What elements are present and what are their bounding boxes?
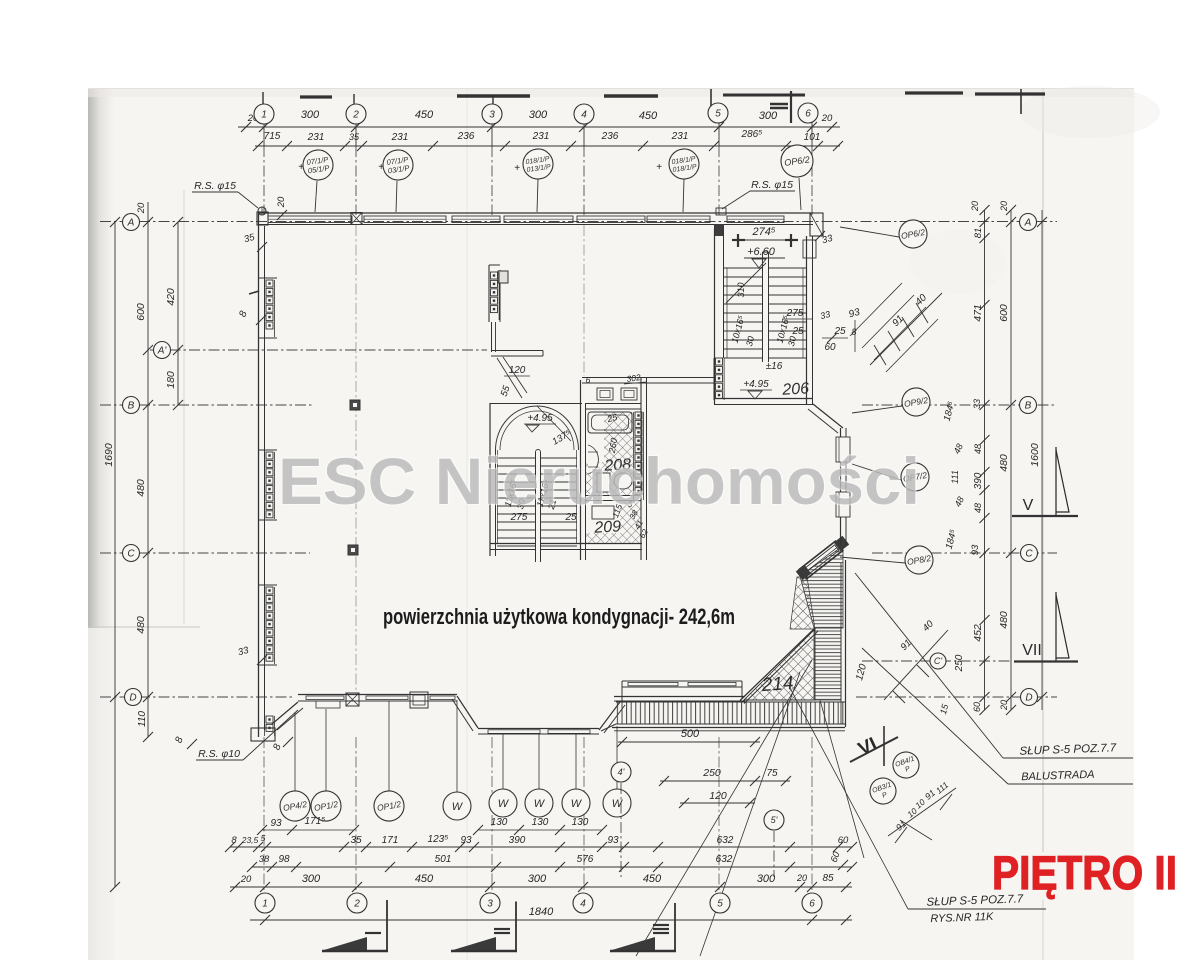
- svg-text:600: 600: [998, 304, 1010, 322]
- svg-text:B: B: [128, 401, 135, 412]
- svg-text:81: 81: [973, 228, 984, 239]
- svg-text:3: 3: [489, 110, 495, 121]
- svg-text:W: W: [534, 798, 546, 810]
- svg-text:20: 20: [970, 201, 980, 212]
- svg-text:130: 130: [572, 817, 589, 828]
- svg-text:5: 5: [715, 109, 721, 120]
- svg-text:302: 302: [626, 372, 642, 384]
- svg-text:20: 20: [276, 196, 287, 208]
- svg-text:171: 171: [382, 835, 399, 846]
- svg-text:480: 480: [998, 454, 1010, 472]
- svg-text:+4.95: +4.95: [743, 379, 769, 390]
- svg-text:110: 110: [137, 711, 148, 727]
- svg-text:6: 6: [809, 899, 815, 910]
- svg-text:480: 480: [135, 479, 147, 497]
- svg-text:A: A: [1024, 218, 1032, 229]
- svg-text:93: 93: [270, 818, 282, 829]
- svg-text:D: D: [1025, 693, 1032, 704]
- svg-text:60: 60: [972, 702, 982, 712]
- svg-text:420: 420: [165, 288, 177, 306]
- svg-text:+: +: [514, 163, 520, 174]
- svg-text:33: 33: [972, 399, 982, 409]
- svg-text:120: 120: [509, 365, 526, 376]
- svg-text:A: A: [127, 218, 135, 229]
- svg-text:214: 214: [760, 673, 794, 696]
- svg-text:20: 20: [240, 874, 252, 885]
- svg-text:4': 4': [618, 767, 625, 777]
- svg-text:120: 120: [709, 790, 727, 802]
- svg-text:75: 75: [766, 768, 778, 779]
- svg-text:130: 130: [491, 817, 508, 828]
- svg-text:48: 48: [973, 503, 983, 513]
- svg-text:300: 300: [528, 873, 547, 885]
- svg-text:390: 390: [509, 835, 526, 846]
- svg-text:209: 209: [593, 518, 622, 536]
- svg-text:390: 390: [973, 472, 984, 489]
- svg-text:R.S. φ10: R.S. φ10: [198, 748, 240, 760]
- svg-text:93: 93: [607, 835, 619, 846]
- svg-text:4: 4: [581, 110, 587, 121]
- svg-text:274⁵: 274⁵: [752, 226, 776, 238]
- svg-text:300: 300: [757, 873, 776, 885]
- svg-text:A': A': [157, 346, 168, 357]
- svg-text:275: 275: [786, 308, 804, 319]
- svg-text:2: 2: [353, 899, 360, 910]
- svg-text:W: W: [452, 801, 464, 813]
- svg-text:2: 2: [352, 110, 359, 121]
- svg-text:5: 5: [717, 899, 723, 910]
- svg-text:±16: ±16: [766, 361, 783, 372]
- svg-text:300: 300: [529, 109, 548, 121]
- svg-text:35: 35: [349, 132, 360, 142]
- svg-text:98: 98: [278, 854, 290, 865]
- svg-text:5': 5': [771, 815, 778, 825]
- svg-text:20: 20: [999, 700, 1009, 711]
- svg-text:5: 5: [261, 833, 266, 843]
- svg-text:R.S. φ15: R.S. φ15: [751, 179, 793, 191]
- svg-text:38: 38: [259, 854, 270, 865]
- svg-text:20: 20: [796, 873, 807, 883]
- svg-text:480: 480: [135, 616, 147, 634]
- svg-text:25: 25: [791, 326, 804, 337]
- svg-text:632: 632: [717, 835, 734, 846]
- svg-text:471: 471: [972, 304, 984, 322]
- svg-text:101: 101: [804, 132, 821, 143]
- svg-text:632: 632: [716, 854, 733, 865]
- svg-text:250: 250: [702, 767, 721, 779]
- svg-text:310: 310: [736, 282, 746, 297]
- svg-text:1: 1: [262, 899, 268, 910]
- svg-text:20: 20: [999, 201, 1009, 212]
- svg-text:286⁵: 286⁵: [741, 129, 763, 140]
- svg-text:23,5: 23,5: [241, 835, 259, 845]
- svg-text:480: 480: [998, 611, 1010, 629]
- svg-text:452: 452: [972, 624, 984, 642]
- svg-text:450: 450: [415, 109, 434, 121]
- svg-text:111: 111: [950, 470, 960, 484]
- svg-text:20: 20: [136, 202, 147, 214]
- svg-text:231: 231: [532, 131, 550, 142]
- svg-text:+4.95: +4.95: [527, 413, 553, 424]
- svg-text:C: C: [1025, 549, 1033, 560]
- svg-text:PIĘTRO II: PIĘTRO II: [992, 846, 1177, 899]
- svg-text:500: 500: [681, 728, 700, 740]
- svg-text:171⁵: 171⁵: [305, 816, 326, 827]
- svg-text:BALUSTRADA: BALUSTRADA: [1021, 769, 1095, 784]
- svg-text:C': C': [934, 656, 942, 666]
- svg-text:450: 450: [639, 110, 658, 122]
- svg-text:576: 576: [577, 854, 594, 865]
- svg-text:B: B: [1025, 401, 1032, 412]
- svg-text:60: 60: [838, 835, 849, 846]
- svg-text:W: W: [498, 798, 510, 810]
- svg-text:3: 3: [487, 899, 493, 910]
- svg-text:300: 300: [759, 110, 778, 122]
- svg-text:450: 450: [415, 873, 434, 885]
- svg-text:35: 35: [350, 835, 362, 846]
- svg-text:+: +: [656, 162, 662, 173]
- svg-text:715: 715: [264, 131, 281, 142]
- svg-text:123⁵: 123⁵: [428, 834, 449, 845]
- svg-text:85: 85: [822, 873, 834, 884]
- svg-text:450: 450: [643, 873, 662, 885]
- svg-text:V: V: [1023, 497, 1034, 514]
- svg-text:1840: 1840: [529, 906, 554, 918]
- svg-text:+6.60: +6.60: [747, 246, 776, 258]
- svg-text:ESC Nieruchomości: ESC Nieruchomości: [278, 444, 920, 518]
- svg-text:236: 236: [457, 131, 475, 142]
- svg-text:600: 600: [135, 303, 147, 321]
- svg-text:C: C: [127, 549, 135, 560]
- svg-text:231: 231: [391, 132, 409, 143]
- svg-text:206: 206: [781, 380, 810, 398]
- svg-text:W: W: [571, 798, 583, 810]
- svg-text:R.S. φ15: R.S. φ15: [194, 180, 236, 192]
- svg-text:231: 231: [307, 132, 325, 143]
- svg-text:300: 300: [302, 873, 321, 885]
- svg-text:300: 300: [301, 109, 320, 121]
- svg-text:W: W: [612, 798, 624, 810]
- svg-text:236: 236: [601, 131, 619, 142]
- svg-text:4: 4: [580, 899, 586, 910]
- svg-text:8: 8: [231, 835, 237, 846]
- svg-text:20: 20: [821, 113, 833, 124]
- svg-text:60: 60: [824, 342, 836, 353]
- svg-text:VII: VII: [1022, 642, 1042, 659]
- svg-text:1600: 1600: [1029, 443, 1041, 467]
- svg-text:48: 48: [973, 444, 983, 454]
- svg-text:6: 6: [586, 375, 591, 385]
- svg-text:1: 1: [261, 110, 267, 121]
- svg-text:93: 93: [460, 835, 472, 846]
- svg-text:6: 6: [805, 109, 811, 120]
- svg-text:180: 180: [165, 371, 177, 389]
- svg-text:D: D: [129, 693, 136, 704]
- svg-text:250: 250: [954, 654, 965, 672]
- svg-text:RYS.NR 11K: RYS.NR 11K: [930, 911, 994, 925]
- svg-text:1690: 1690: [103, 443, 115, 467]
- svg-text:93: 93: [970, 544, 981, 555]
- svg-text:501: 501: [435, 854, 452, 865]
- svg-text:130: 130: [532, 817, 549, 828]
- svg-text:powierzchnia użytkowa kondygna: powierzchnia użytkowa kondygnacji- 242,6…: [383, 604, 735, 629]
- svg-text:231: 231: [671, 131, 689, 142]
